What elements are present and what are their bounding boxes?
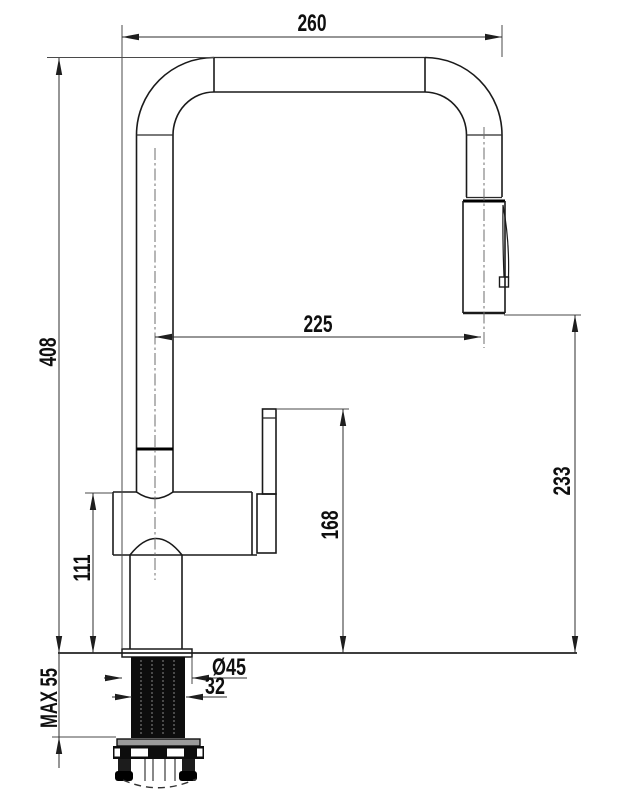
handle-lever [263,409,277,494]
right-elbow-outer [425,58,502,136]
dim-handle-top-height: 168 [317,409,346,653]
faucet-spout [137,58,503,493]
left-elbow-outer [137,58,215,136]
dim-shank-diameter-label: 32 [205,673,225,700]
mounting-stud-left [118,759,131,772]
nut-slot-left [131,749,148,757]
dim-spout-width-label: 260 [298,10,327,37]
dim-overall-height: 408 [35,58,62,653]
right-elbow-inner [425,92,467,135]
stud-head-left [115,771,133,781]
technical-drawing-page: 260 408 MAX 55 111 168 233 [0,0,637,792]
dim-max-deck-thickness-label: MAX 55 [36,668,63,728]
threaded-shank [131,657,185,738]
dim-body-top-height-label: 111 [69,555,96,582]
nut-notch-right [197,749,203,757]
extension-lines [47,25,581,737]
mounting-stud-right [182,759,195,772]
dim-outlet-height: 233 [549,315,578,653]
dim-handle-top-height-label: 168 [317,511,344,540]
mounting-washer-plate [117,739,200,746]
left-elbow-inner [173,92,214,135]
nut-notch-left [115,749,121,757]
dim-outlet-height-label: 233 [549,467,576,496]
dim-spout-width: 260 [122,10,502,40]
spray-head [463,198,509,314]
faucet-technical-drawing: 260 408 MAX 55 111 168 233 [0,0,637,792]
base-dome-arch [130,539,182,556]
dim-overall-height-label: 408 [35,338,62,367]
pull-tab-hook [500,277,509,287]
nut-slot-right [167,749,184,757]
dim-spout-reach-label: 225 [304,311,333,338]
dim-spout-reach: 225 [155,311,481,340]
mounting-hardware [113,649,204,788]
dim-max-deck-thickness: MAX 55 [36,653,63,768]
handle-end-cap [257,494,276,553]
mounting-nut [113,746,204,759]
dim-body-top-height: 111 [69,493,96,653]
supply-hoses [145,759,175,781]
mixer-body [113,409,276,649]
